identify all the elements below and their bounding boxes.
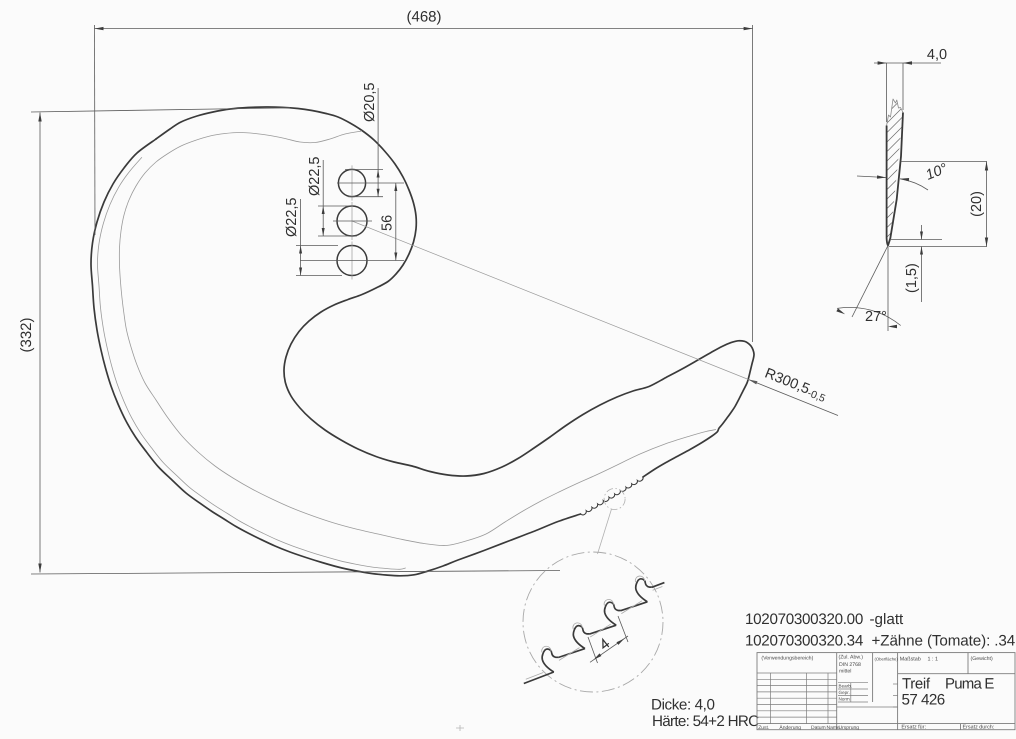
svg-text:27°: 27°: [865, 309, 887, 325]
svg-text:Puma E: Puma E: [945, 676, 994, 693]
svg-text:Ursprung: Ursprung: [839, 725, 860, 731]
svg-text:Dicke: 4,0: Dicke: 4,0: [651, 697, 715, 714]
svg-text:Ø22,5: Ø22,5: [307, 157, 323, 197]
svg-text:1 : 1: 1 : 1: [928, 657, 939, 663]
svg-text:Datum: Datum: [811, 725, 826, 731]
svg-text:(Gewicht): (Gewicht): [971, 656, 993, 662]
svg-text:(Zul. Abw.): (Zul. Abw.): [839, 655, 864, 661]
svg-text:Ø20,5: Ø20,5: [362, 83, 378, 123]
svg-text:(20): (20): [969, 191, 985, 217]
svg-text:Ø22,5: Ø22,5: [284, 198, 300, 238]
svg-text:Bearb.: Bearb.: [839, 684, 853, 689]
svg-text:+Zähne (Tomate): .34: +Zähne (Tomate): .34: [872, 633, 1016, 650]
svg-text:DIN 2768: DIN 2768: [839, 662, 861, 668]
svg-text:Treif: Treif: [902, 676, 931, 693]
svg-text:(Verwendungsbereich): (Verwendungsbereich): [761, 656, 813, 662]
svg-text:Maßstab: Maßstab: [900, 657, 921, 663]
svg-text:Härte: 54+2 HRC: Härte: 54+2 HRC: [652, 713, 759, 730]
svg-text:102070300320.00: 102070300320.00: [745, 611, 863, 628]
svg-text:(468): (468): [406, 9, 441, 26]
svg-text:Ersatz durch:: Ersatz durch:: [963, 725, 995, 731]
svg-text:(Oberfläche): (Oberfläche): [875, 657, 899, 662]
svg-text:Änderung: Änderung: [779, 724, 801, 731]
svg-text:Norm: Norm: [839, 697, 850, 702]
svg-text:(332): (332): [18, 317, 35, 352]
svg-text:Zust.: Zust.: [758, 725, 769, 731]
svg-text:Gepr.: Gepr.: [839, 690, 850, 695]
svg-text:56: 56: [380, 215, 396, 231]
svg-text:4,0: 4,0: [927, 47, 947, 63]
svg-text:102070300320.34: 102070300320.34: [745, 633, 863, 650]
svg-text:mittel: mittel: [839, 669, 851, 675]
svg-text:-glatt: -glatt: [870, 611, 905, 628]
svg-text:(1,5): (1,5): [904, 263, 920, 293]
svg-text:Ersatz für:: Ersatz für:: [901, 725, 926, 731]
svg-text:57 426: 57 426: [902, 692, 945, 709]
